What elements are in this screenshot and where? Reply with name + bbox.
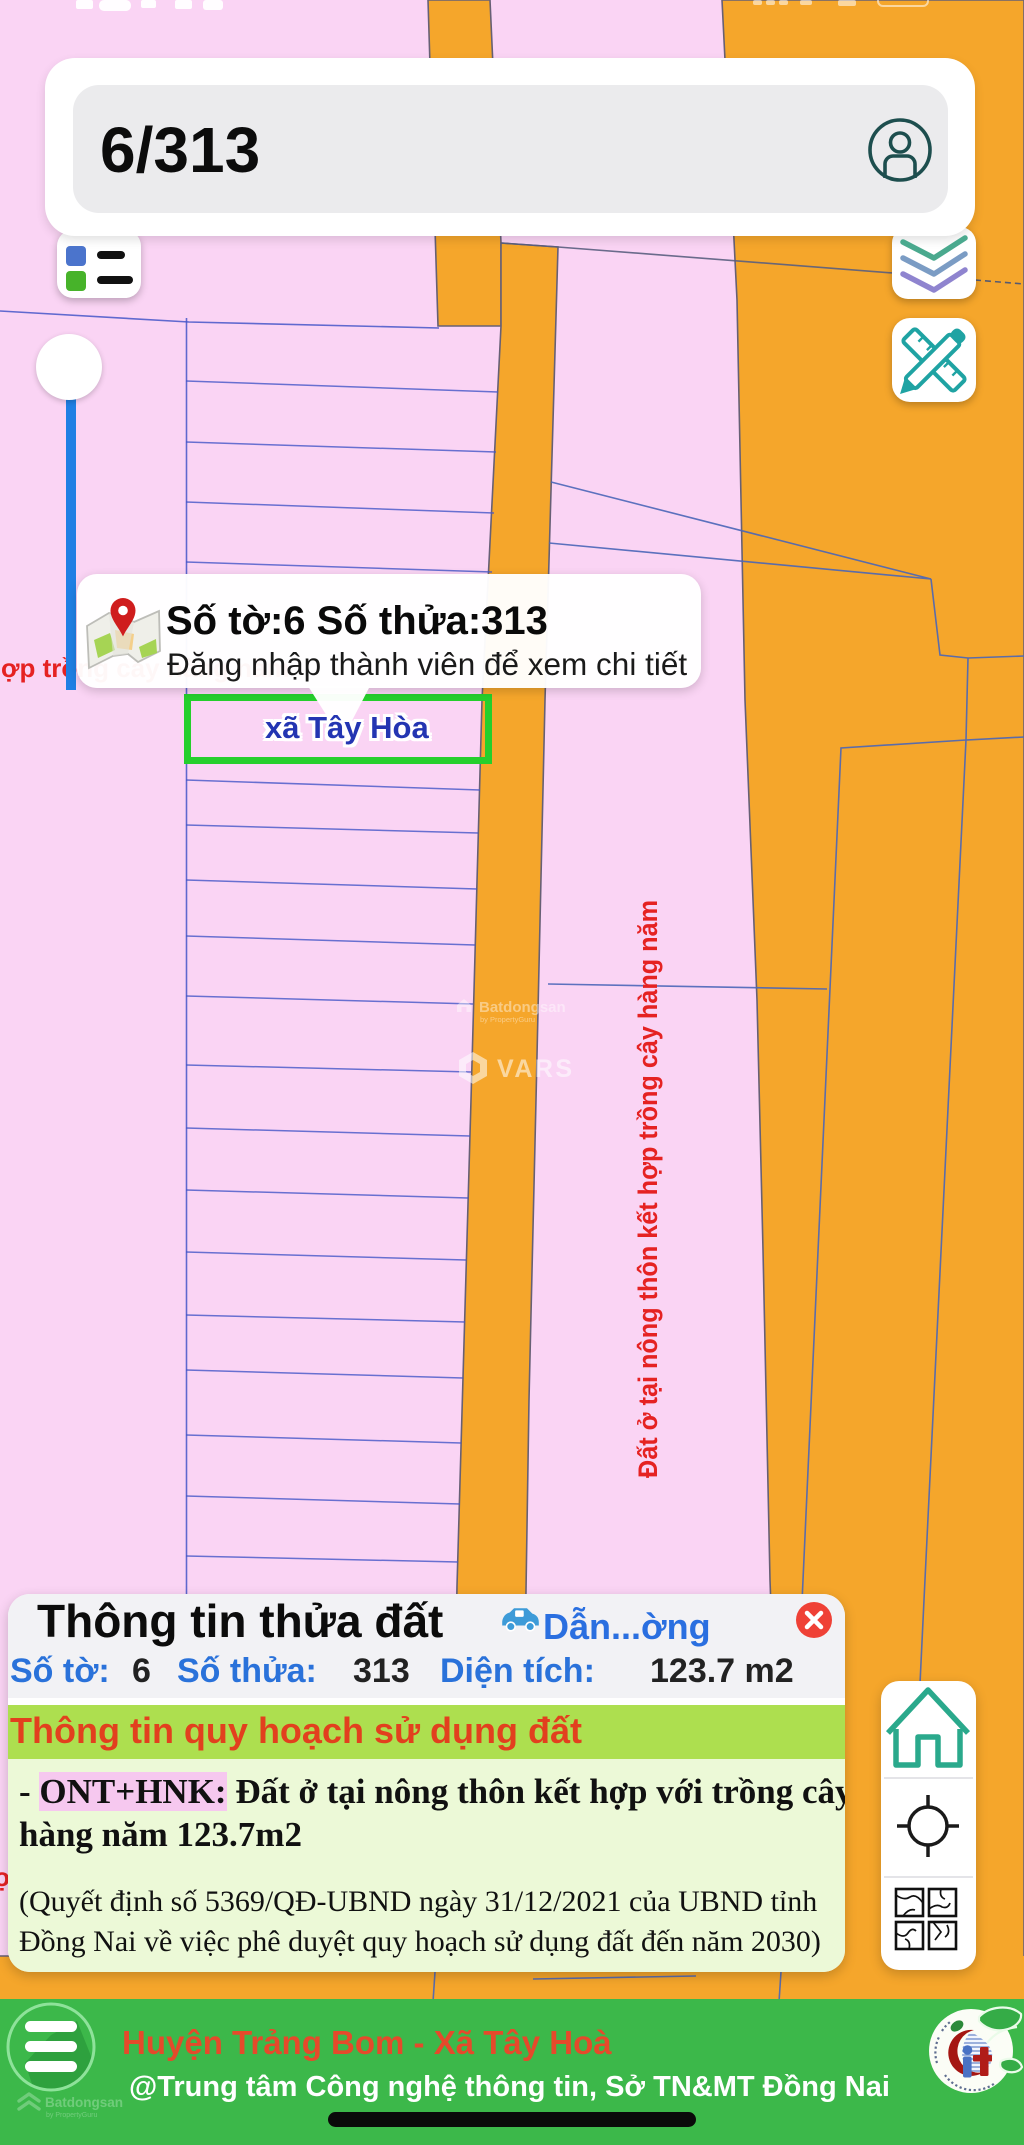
svg-text:VARS: VARS (497, 1055, 575, 1083)
svg-text:Batdongsan: Batdongsan (479, 999, 566, 1016)
svg-text:by PropertyGuru: by PropertyGuru (46, 2112, 97, 2119)
svg-text:Đất ở tại nông thôn kết hợp tr: Đất ở tại nông thôn kết hợp trồng cây hà… (633, 900, 663, 1478)
svg-text:by PropertyGuru: by PropertyGuru (480, 1015, 535, 1024)
svg-text:Batdongsan: Batdongsan (45, 2095, 123, 2110)
